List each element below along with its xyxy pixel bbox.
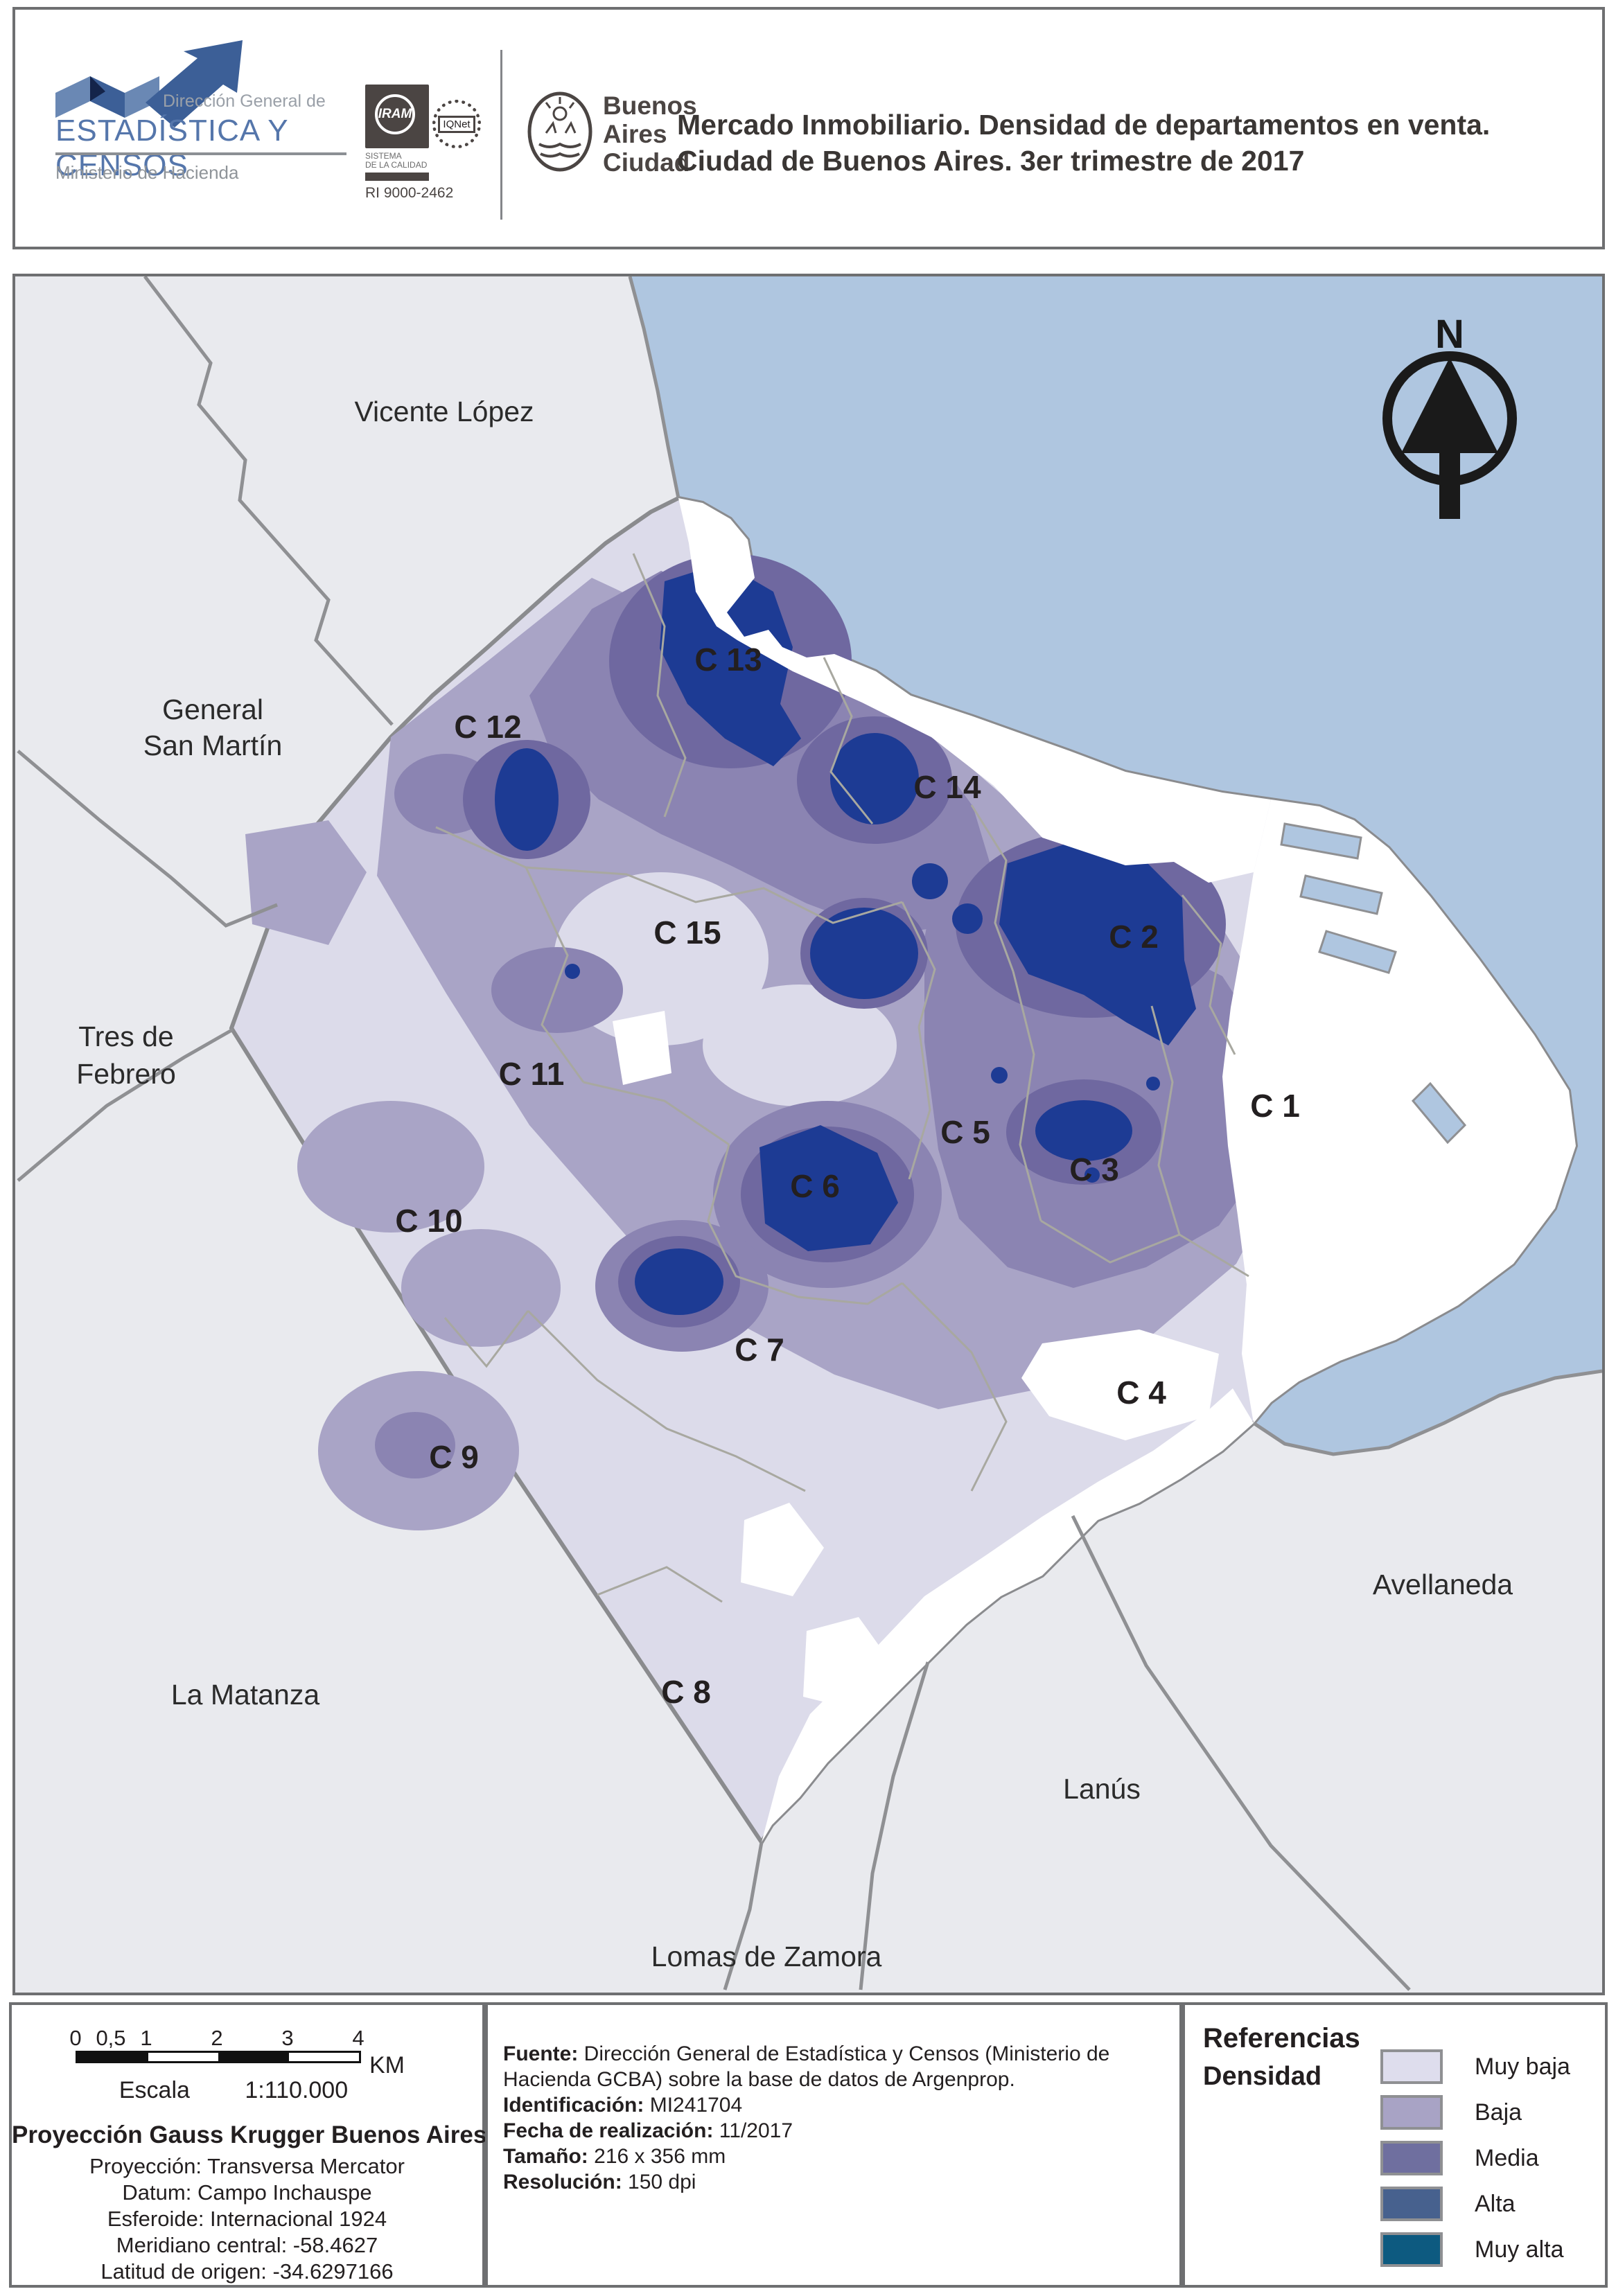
escala-label: Escala — [119, 2077, 190, 2103]
org-logo-rule — [55, 152, 346, 155]
legend-panel: Referencias Densidad Muy baja Baja Media… — [1182, 2002, 1608, 2288]
label-avellaneda: Avellaneda — [1373, 1569, 1513, 1600]
label-c5: C 5 — [940, 1114, 990, 1150]
projection-line3: Esferoide: Internacional 1924 — [12, 2206, 482, 2232]
org-logo-line3: Ministerio de Hacienda — [55, 162, 238, 184]
label-vicente-lopez: Vicente López — [354, 396, 534, 427]
label-lomas-de-zamora: Lomas de Zamora — [651, 1941, 882, 1972]
legend-label-muy-baja: Muy baja — [1475, 2054, 1570, 2081]
resolucion-value: 150 dpi — [628, 2171, 696, 2193]
map-title-line1: Mercado Inmobiliario. Densidad de depart… — [677, 107, 1490, 143]
tamano-label: Tamaño: — [503, 2145, 588, 2168]
projection-line4: Meridiano central: -58.4627 — [12, 2232, 482, 2259]
scale-tick-3: 3 — [281, 2026, 293, 2051]
ba-seal-icon — [525, 90, 595, 173]
legend-swatch-baja — [1380, 2095, 1443, 2130]
source-tamano: Tamaño: 216 x 356 mm — [503, 2144, 1163, 2169]
label-c10: C 10 — [395, 1203, 462, 1239]
map-panel: Vicente López General San Martín Tres de… — [12, 274, 1605, 1995]
escala-row: Escala 1:110.000 — [12, 2077, 455, 2104]
label-c14: C 14 — [913, 769, 981, 805]
iqnet-logo-name: IQNet — [438, 116, 475, 133]
label-general-san-martin-2: San Martín — [143, 730, 283, 761]
source-fecha: Fecha de realización: 11/2017 — [503, 2118, 1163, 2144]
label-c6: C 6 — [790, 1168, 840, 1204]
scale-bar-segments — [76, 2051, 361, 2063]
scale-segment-3 — [218, 2053, 289, 2061]
label-lanus: Lanús — [1063, 1773, 1141, 1805]
legend-rows: Muy baja Baja Media Alta Muy alta — [1380, 2049, 1570, 2278]
iqnet-logo-icon: IQNet — [432, 100, 481, 148]
legend-row-alta: Alta — [1380, 2187, 1570, 2221]
legend-row-baja: Baja — [1380, 2095, 1570, 2130]
label-general-san-martin-1: General — [162, 694, 263, 725]
scale-bar-ticks: 0 0,5 1 2 3 4 — [76, 2026, 408, 2051]
label-c9: C 9 — [429, 1439, 479, 1475]
scale-projection-panel: 0 0,5 1 2 3 4 KM Escala 1:110.000 Proyec… — [9, 2002, 485, 2288]
header-divider — [500, 50, 502, 220]
scale-segment-4 — [289, 2053, 360, 2061]
label-c15: C 15 — [653, 915, 721, 951]
projection-line2: Datum: Campo Inchauspe — [12, 2180, 482, 2206]
label-c11: C 11 — [499, 1056, 565, 1092]
label-c7: C 7 — [735, 1332, 784, 1368]
label-c1: C 1 — [1250, 1088, 1300, 1124]
source-resolucion: Resolución: 150 dpi — [503, 2169, 1163, 2195]
scale-tick-2: 2 — [211, 2026, 222, 2051]
source-fuente: Fuente: Dirección General de Estadística… — [503, 2041, 1163, 2092]
legend-swatch-media — [1380, 2141, 1443, 2175]
projection-info: Proyección Gauss Krugger Buenos Aires Pr… — [12, 2121, 482, 2285]
iram-sub-line2: DE LA CALIDAD — [365, 161, 434, 170]
fuente-text: Dirección General de Estadística y Censo… — [503, 2042, 1109, 2091]
iram-logo-icon: IRAM SISTEMA DE LA CALIDAD RI 9000-2462 — [365, 85, 434, 202]
legend-label-media: Media — [1475, 2145, 1539, 2172]
map-canvas: Vicente López General San Martín Tres de… — [15, 276, 1602, 1993]
tamano-value: 216 x 356 mm — [594, 2145, 726, 2168]
page: { "header": { "org_logo": { "line1": "Di… — [0, 0, 1616, 2296]
legend-title: Referencias — [1203, 2023, 1360, 2054]
legend-subtitle: Densidad — [1203, 2062, 1321, 2092]
map-title-line2: Ciudad de Buenos Aires. 3er trimestre de… — [677, 143, 1490, 179]
projection-line5: Latitud de origen: -34.6297166 — [12, 2259, 482, 2285]
label-c8: C 8 — [661, 1674, 711, 1710]
projection-line1: Proyección: Transversa Mercator — [12, 2153, 482, 2180]
scale-bar: 0 0,5 1 2 3 4 KM — [76, 2026, 408, 2063]
id-label: Identificación: — [503, 2094, 644, 2117]
legend-swatch-muy-baja — [1380, 2049, 1443, 2084]
scale-segment-1 — [78, 2053, 148, 2061]
scale-unit: KM — [369, 2052, 405, 2079]
iram-logo-name: IRAM — [378, 107, 412, 122]
label-c12: C 12 — [454, 709, 521, 745]
fuente-label: Fuente: — [503, 2042, 578, 2065]
legend-row-muy-baja: Muy baja — [1380, 2049, 1570, 2084]
scale-tick-4: 4 — [352, 2026, 364, 2051]
label-tres-de-febrero-1: Tres de — [78, 1021, 173, 1052]
fecha-value: 11/2017 — [719, 2119, 793, 2142]
legend-label-alta: Alta — [1475, 2191, 1516, 2218]
legend-row-muy-alta: Muy alta — [1380, 2232, 1570, 2267]
legend-row-media: Media — [1380, 2141, 1570, 2175]
source-id: Identificación: MI241704 — [503, 2092, 1163, 2118]
label-c2: C 2 — [1109, 919, 1159, 955]
escala-value: 1:110.000 — [245, 2077, 348, 2103]
scale-tick-05: 0,5 — [96, 2026, 125, 2051]
legend-swatch-muy-alta — [1380, 2232, 1443, 2267]
source-panel: Fuente: Dirección General de Estadística… — [485, 2002, 1182, 2288]
legend-label-muy-alta: Muy alta — [1475, 2236, 1564, 2263]
label-c13: C 13 — [694, 642, 762, 678]
map-title: Mercado Inmobiliario. Densidad de depart… — [677, 107, 1490, 179]
header-panel: Dirección General de ESTADÍSTICA Y CENSO… — [12, 7, 1605, 249]
label-c4: C 4 — [1116, 1375, 1166, 1411]
estadistica-censos-logo: Dirección General de ESTADÍSTICA Y CENSO… — [42, 36, 346, 188]
north-arrow-label: N — [1435, 312, 1464, 357]
scale-tick-1: 1 — [140, 2026, 152, 2051]
projection-title: Proyección Gauss Krugger Buenos Aires — [12, 2121, 482, 2149]
iram-bar — [365, 173, 429, 181]
label-la-matanza: La Matanza — [171, 1679, 319, 1711]
legend-swatch-alta — [1380, 2187, 1443, 2221]
label-tres-de-febrero-2: Febrero — [76, 1058, 176, 1090]
fecha-label: Fecha de realización: — [503, 2119, 713, 2142]
iram-cert-number: RI 9000-2462 — [365, 185, 434, 202]
org-logo-line1: Dirección General de — [163, 91, 326, 112]
scale-tick-0: 0 — [69, 2026, 81, 2051]
id-value: MI241704 — [650, 2094, 742, 2117]
label-c3: C 3 — [1069, 1151, 1119, 1187]
resolucion-label: Resolución: — [503, 2171, 622, 2193]
legend-label-baja: Baja — [1475, 2099, 1522, 2126]
scale-segment-2 — [148, 2053, 219, 2061]
